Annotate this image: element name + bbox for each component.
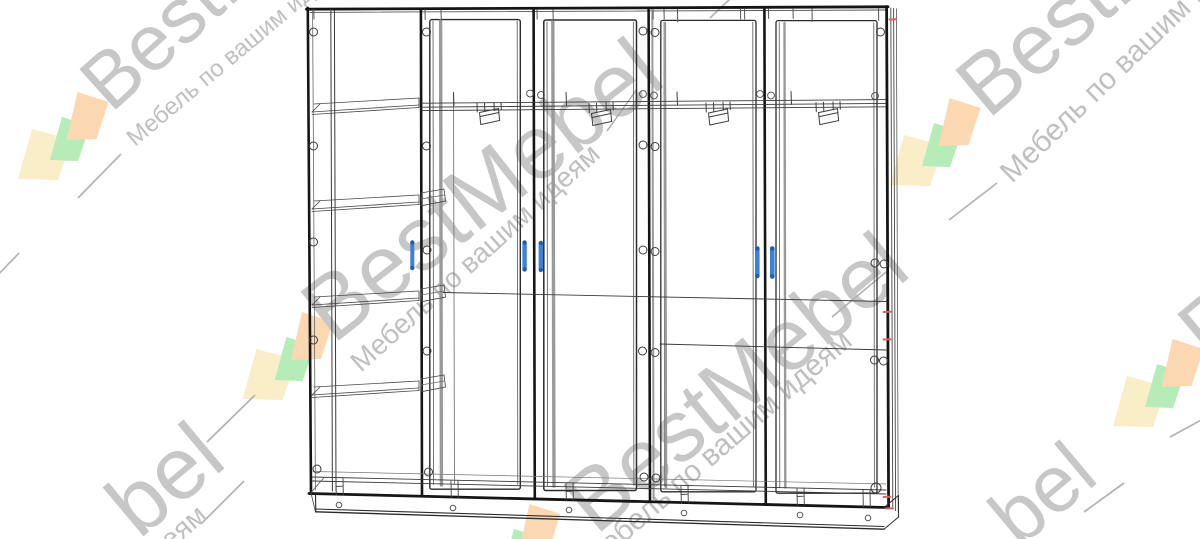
svg-text:bel: bel — [88, 403, 242, 539]
svg-text:BestMebel: BestMebel — [1161, 44, 1200, 379]
svg-text:bel: bel — [973, 425, 1112, 539]
svg-text:BestMebel: BestMebel — [284, 20, 681, 361]
